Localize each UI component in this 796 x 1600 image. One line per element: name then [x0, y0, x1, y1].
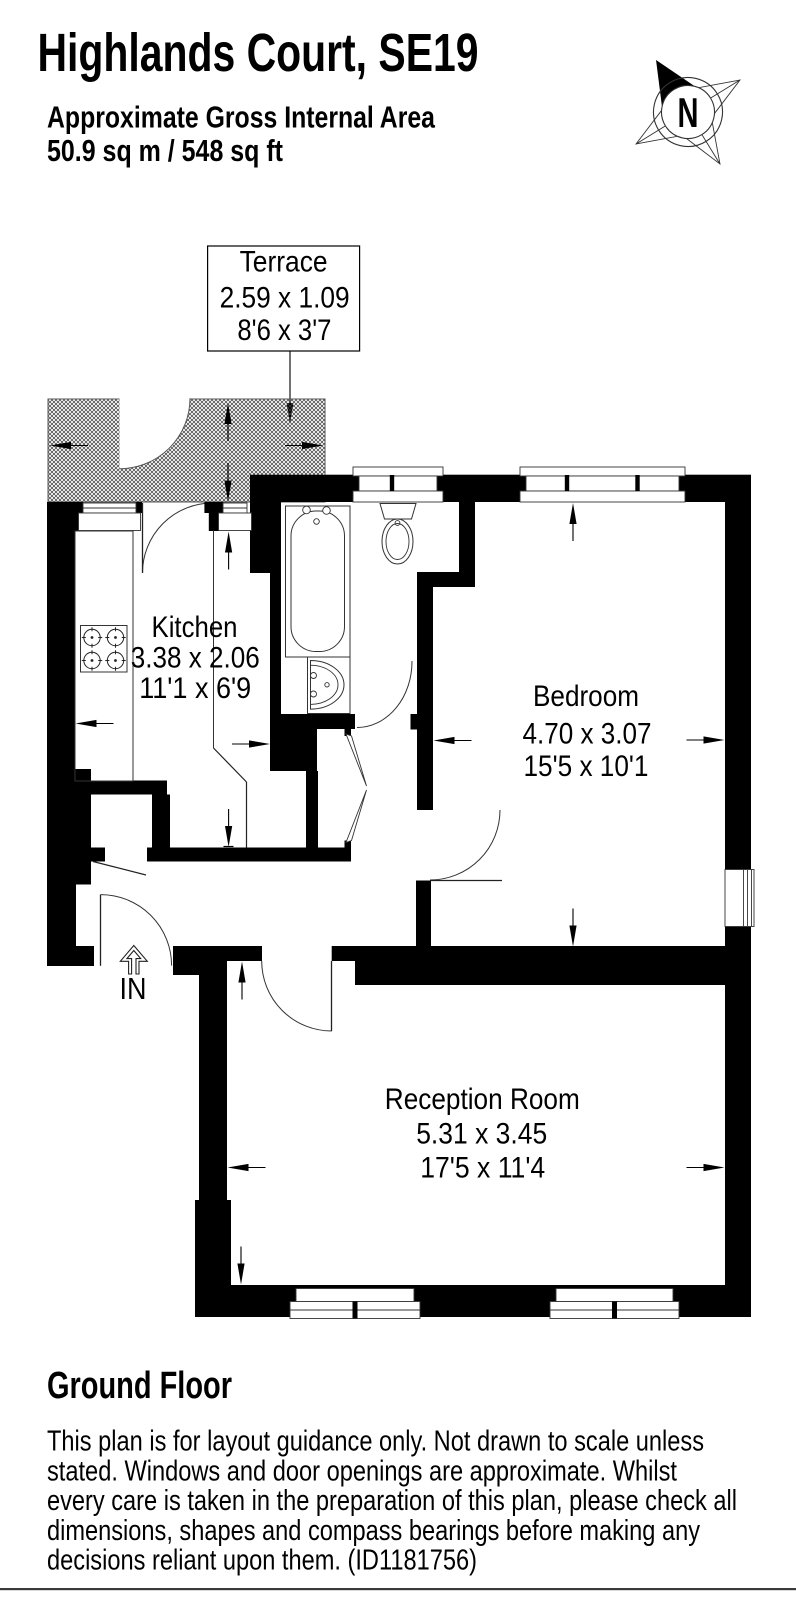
svg-text:50.9 sq m / 548 sq ft: 50.9 sq m / 548 sq ft — [47, 134, 283, 168]
svg-text:Reception Room: Reception Room — [385, 1083, 580, 1116]
svg-text:8'6 x 3'7: 8'6 x 3'7 — [237, 314, 331, 347]
svg-text:17'5 x 11'4: 17'5 x 11'4 — [420, 1152, 545, 1185]
svg-text:every care is taken in the pre: every care is taken in the preparation o… — [47, 1485, 737, 1517]
svg-text:N: N — [678, 89, 699, 136]
svg-text:Ground Floor: Ground Floor — [47, 1365, 232, 1407]
svg-text:4.70 x 3.07: 4.70 x 3.07 — [523, 718, 652, 751]
svg-text:11'1 x 6'9: 11'1 x 6'9 — [139, 672, 251, 705]
svg-text:decisions reliant upon them. (: decisions reliant upon them. (ID1181756) — [47, 1545, 477, 1577]
svg-text:3.38 x 2.06: 3.38 x 2.06 — [131, 642, 260, 675]
svg-text:2.59 x 1.09: 2.59 x 1.09 — [220, 282, 350, 315]
svg-text:Kitchen: Kitchen — [152, 611, 238, 644]
svg-text:5.31 x 3.45: 5.31 x 3.45 — [416, 1118, 547, 1151]
svg-text:Approximate Gross Internal Are: Approximate Gross Internal Area — [47, 101, 436, 135]
svg-text:Terrace: Terrace — [240, 246, 328, 279]
svg-text:stated. Windows and door openi: stated. Windows and door openings are ap… — [47, 1455, 677, 1487]
svg-text:dimensions, shapes and compass: dimensions, shapes and compass bearings … — [47, 1515, 700, 1547]
svg-text:15'5 x 10'1: 15'5 x 10'1 — [524, 750, 649, 783]
svg-text:Bedroom: Bedroom — [533, 680, 639, 713]
svg-text:This plan is for layout guidan: This plan is for layout guidance only. N… — [47, 1426, 704, 1458]
svg-text:IN: IN — [120, 971, 147, 1006]
svg-text:Highlands Court, SE19: Highlands Court, SE19 — [38, 23, 479, 83]
